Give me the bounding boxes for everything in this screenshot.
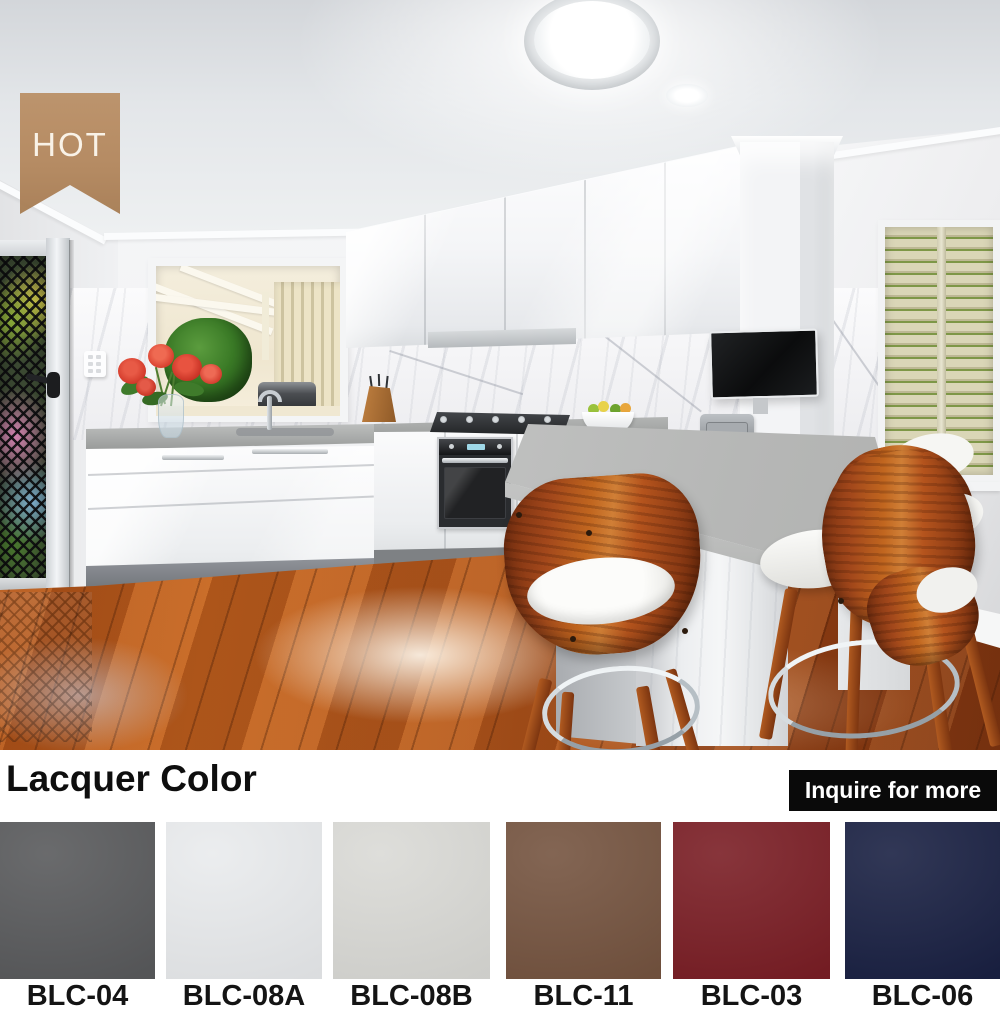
door-frame-shadow: [69, 240, 74, 590]
swatch-code-label: BLC-11: [506, 980, 661, 1012]
tv-mount: [753, 398, 768, 414]
glass-vase: [158, 394, 184, 438]
stool-screw: [838, 598, 844, 604]
switch-button: [96, 369, 101, 373]
cabinet-handle: [252, 449, 328, 454]
oven-handle: [442, 458, 508, 463]
burner: [544, 416, 551, 423]
switch-button: [96, 355, 101, 359]
oven-knob: [449, 444, 454, 449]
color-swatch-blc-08a: [166, 822, 322, 979]
swatch-code-label: BLC-03: [673, 980, 830, 1012]
red-flower: [148, 344, 174, 368]
inquire-button[interactable]: Inquire for more: [789, 770, 997, 811]
swatch-code-label: BLC-06: [845, 980, 1000, 1012]
switch-button: [88, 362, 93, 366]
burner: [440, 416, 447, 423]
swatch-sheen: [166, 822, 322, 979]
stool-footrest-ring: [539, 661, 703, 750]
red-flower: [136, 378, 156, 396]
tall-cabinet: [740, 142, 834, 464]
bar-stool: [752, 448, 1000, 750]
color-swatch-blc-03: [673, 822, 830, 979]
security-door-stile: [46, 238, 70, 590]
color-swatch-blc-06: [845, 822, 1000, 979]
stool-screw: [682, 628, 688, 634]
stool-screw: [570, 636, 576, 642]
switch-button: [96, 362, 101, 366]
fruit: [598, 401, 609, 412]
burner: [518, 416, 525, 423]
color-swatch-blc-08b: [333, 822, 490, 979]
pergola-post: [262, 292, 269, 360]
swatch-sheen: [506, 822, 661, 979]
faucet: [267, 396, 272, 430]
red-flower: [172, 354, 202, 381]
bar-stool: [500, 470, 708, 750]
color-swatch-blc-04: [0, 822, 155, 979]
red-flower: [200, 364, 222, 384]
swatch-code-label: BLC-08A: [166, 980, 322, 1012]
switch-button: [88, 355, 93, 359]
oven-door-glass: [444, 467, 506, 519]
door-handle-plate: [47, 372, 60, 398]
stool-screw: [586, 530, 592, 536]
burner: [466, 416, 473, 423]
color-swatch-blc-11: [506, 822, 661, 979]
door-reflection: [0, 592, 92, 742]
swatch-sheen: [673, 822, 830, 979]
downlight: [666, 84, 708, 107]
cabinet-handle: [162, 455, 224, 460]
section-title: Lacquer Color: [6, 758, 257, 800]
security-door-mesh: [0, 256, 47, 584]
product-image: HOT Lacquer Color Inquire for more BLC-0…: [0, 0, 1000, 1017]
hot-badge-label: HOT: [20, 126, 120, 164]
stool-screw: [516, 512, 522, 518]
oven-knob: [497, 444, 502, 449]
knife: [378, 374, 380, 386]
flower-arrangement: [112, 338, 228, 442]
swatch-sheen: [333, 822, 490, 979]
burner: [492, 416, 499, 423]
oven-display: [467, 444, 485, 450]
ceiling-light-diffuser: [534, 1, 650, 79]
wall-tv: [709, 329, 819, 400]
switch-button: [88, 369, 93, 373]
light-switch: [84, 351, 106, 377]
swatch-code-label: BLC-08B: [333, 980, 490, 1012]
swatch-sheen: [845, 822, 1000, 979]
kitchen-photo: HOT: [0, 0, 1000, 750]
swatch-sheen: [0, 822, 155, 979]
swatch-code-label: BLC-04: [0, 980, 155, 1012]
sink: [236, 428, 334, 436]
